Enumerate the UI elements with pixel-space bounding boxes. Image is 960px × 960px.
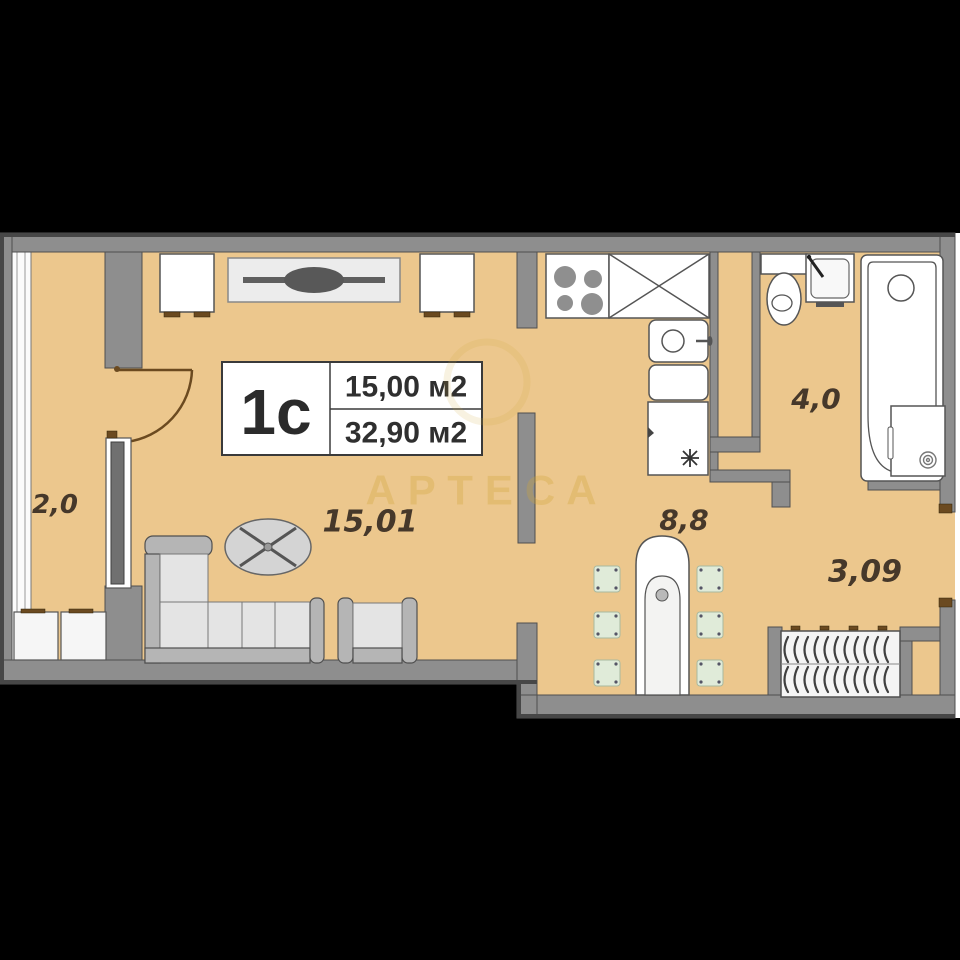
stool: [594, 566, 620, 592]
title-block: 1с 15,00 м2 32,90 м2: [222, 362, 482, 455]
dining-table: [636, 536, 689, 695]
cabinet-right: [420, 254, 474, 317]
kitchen-label: 8,8: [659, 504, 709, 537]
armchair: [338, 598, 417, 663]
washbasin: [806, 254, 854, 307]
stool: [594, 612, 620, 638]
washing-machine: [888, 406, 945, 476]
kitchen-worktop: [609, 254, 709, 318]
snowflake-icon: [681, 449, 699, 467]
kitchen-sink: [649, 320, 713, 362]
tv-icon: [284, 267, 344, 293]
stool: [697, 566, 723, 592]
kitchen-cabinet: [649, 365, 708, 400]
floor-plan: 2,0 15,01 8,8 4,0 3,09 1с 15,00 м2 32,90…: [0, 0, 960, 960]
balcony-window-band: [11, 252, 31, 660]
total-area-value: 32,90 м2: [345, 417, 467, 450]
right-margin: [955, 233, 960, 718]
unit-label: 1с: [240, 376, 311, 448]
balcony-window-block: [106, 431, 131, 588]
hallway-label: 3,09: [828, 555, 902, 590]
stool: [697, 612, 723, 638]
fridge: [648, 402, 708, 475]
wardrobe: [781, 626, 900, 697]
stool: [697, 660, 723, 686]
floor-plan-page: 2,0 15,01 8,8 4,0 3,09 1с 15,00 м2 32,90…: [0, 0, 960, 960]
tv-stand: [228, 258, 400, 302]
cabinet-left: [160, 254, 214, 317]
balcony-label: 2,0: [32, 490, 78, 520]
bathroom-label: 4,0: [790, 383, 841, 416]
watermark-text: АРТЕСА: [365, 467, 608, 514]
stool: [594, 660, 620, 686]
stove: [546, 254, 609, 318]
coffee-table: [225, 519, 311, 575]
